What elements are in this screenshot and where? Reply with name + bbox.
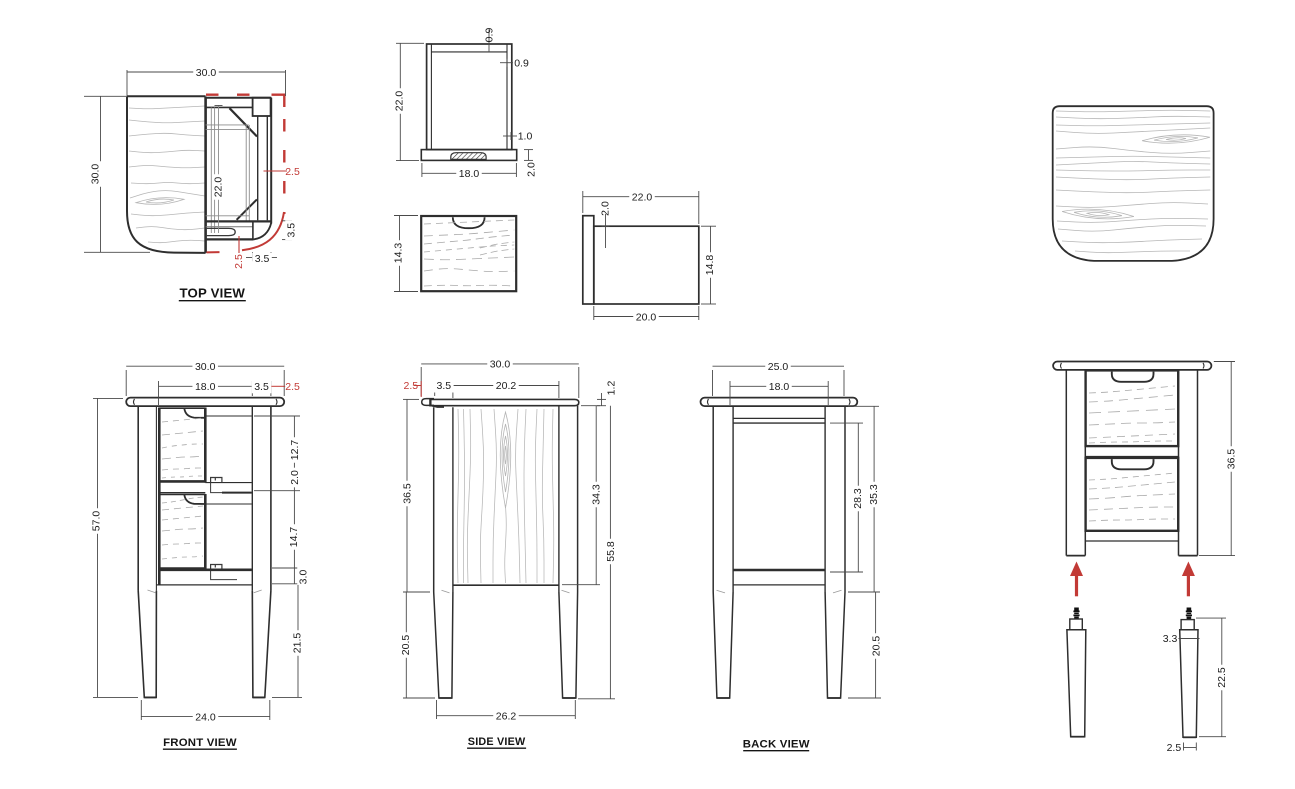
svg-text:57.0: 57.0 bbox=[90, 511, 102, 532]
svg-text:3.5: 3.5 bbox=[285, 223, 297, 238]
svg-text:30.0: 30.0 bbox=[196, 67, 217, 79]
svg-text:36.5: 36.5 bbox=[1225, 449, 1237, 470]
svg-text:BACK VIEW: BACK VIEW bbox=[743, 739, 810, 751]
svg-text:36.5: 36.5 bbox=[401, 483, 413, 504]
svg-text:55.8: 55.8 bbox=[605, 541, 617, 562]
svg-text:1.0: 1.0 bbox=[518, 131, 533, 143]
svg-text:3.5: 3.5 bbox=[436, 380, 451, 392]
svg-text:22.0: 22.0 bbox=[212, 177, 224, 198]
svg-text:2.0: 2.0 bbox=[525, 162, 537, 177]
svg-text:22.5: 22.5 bbox=[1216, 667, 1228, 688]
svg-text:26.2: 26.2 bbox=[496, 711, 517, 723]
svg-text:25.0: 25.0 bbox=[768, 361, 789, 373]
svg-text:24.0: 24.0 bbox=[195, 711, 216, 723]
svg-text:28.3: 28.3 bbox=[852, 488, 864, 509]
svg-text:12.7: 12.7 bbox=[289, 440, 301, 461]
svg-text:20.5: 20.5 bbox=[870, 636, 882, 657]
svg-text:18.0: 18.0 bbox=[769, 381, 790, 393]
svg-text:20.0: 20.0 bbox=[636, 311, 657, 323]
svg-text:SIDE VIEW: SIDE VIEW bbox=[468, 736, 526, 748]
svg-text:20.5: 20.5 bbox=[400, 635, 412, 656]
svg-text:2.5: 2.5 bbox=[233, 254, 245, 269]
svg-text:30.0: 30.0 bbox=[195, 361, 216, 373]
svg-text:3.5: 3.5 bbox=[255, 253, 270, 265]
svg-text:3.5: 3.5 bbox=[254, 381, 269, 393]
svg-text:2.5: 2.5 bbox=[285, 381, 300, 393]
svg-text:FRONT VIEW: FRONT VIEW bbox=[163, 737, 237, 749]
svg-text:2.0: 2.0 bbox=[289, 470, 301, 485]
svg-text:TOP VIEW: TOP VIEW bbox=[179, 286, 245, 301]
svg-text:35.3: 35.3 bbox=[868, 484, 880, 505]
svg-text:14.3: 14.3 bbox=[392, 243, 404, 264]
svg-text:0.9: 0.9 bbox=[514, 57, 529, 69]
svg-text:3.3: 3.3 bbox=[1163, 633, 1178, 645]
svg-text:14.7: 14.7 bbox=[288, 527, 300, 548]
svg-text:21.5: 21.5 bbox=[291, 633, 303, 654]
svg-text:34.3: 34.3 bbox=[591, 484, 603, 505]
svg-text:14.8: 14.8 bbox=[704, 255, 716, 276]
svg-text:18.0: 18.0 bbox=[195, 381, 216, 393]
svg-text:2.5: 2.5 bbox=[285, 166, 300, 178]
svg-text:22.0: 22.0 bbox=[393, 91, 405, 112]
svg-text:18.0: 18.0 bbox=[459, 168, 480, 180]
svg-text:30.0: 30.0 bbox=[89, 164, 101, 185]
svg-text:1.2: 1.2 bbox=[605, 381, 617, 396]
svg-text:0.9: 0.9 bbox=[483, 28, 495, 43]
svg-text:30.0: 30.0 bbox=[490, 359, 511, 371]
svg-text:2.5: 2.5 bbox=[403, 380, 418, 392]
svg-text:2.0: 2.0 bbox=[599, 201, 611, 216]
svg-text:20.2: 20.2 bbox=[496, 380, 517, 392]
svg-text:22.0: 22.0 bbox=[632, 192, 653, 204]
svg-text:2.5: 2.5 bbox=[1167, 742, 1182, 754]
svg-text:3.0: 3.0 bbox=[297, 570, 309, 585]
